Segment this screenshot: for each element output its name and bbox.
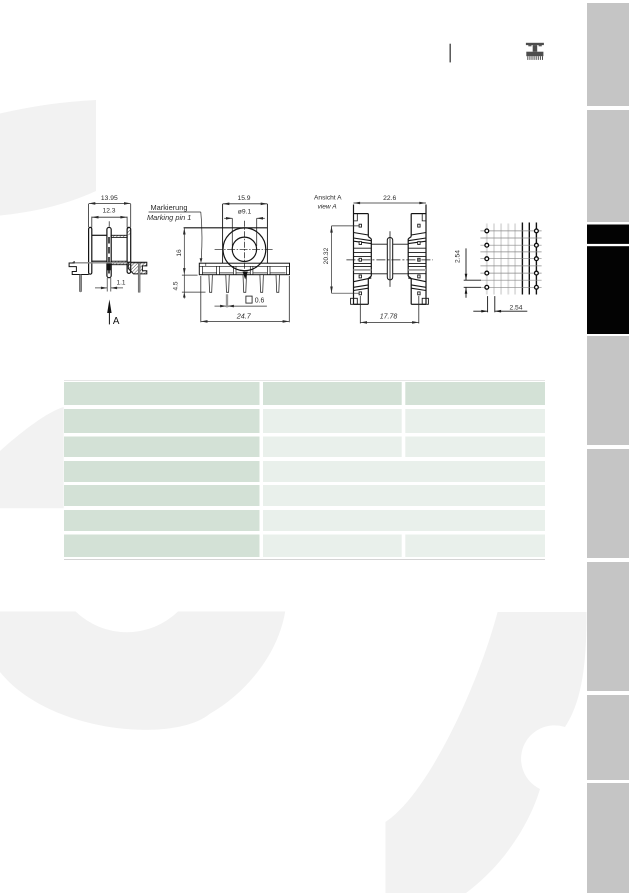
svg-text:20.32: 20.32 xyxy=(323,247,330,264)
svg-text:12.3: 12.3 xyxy=(102,208,115,215)
svg-text:16: 16 xyxy=(176,249,183,257)
svg-text:0.6: 0.6 xyxy=(255,297,265,304)
svg-text:Markierung: Markierung xyxy=(151,203,188,212)
svg-text:22.6: 22.6 xyxy=(383,195,396,202)
svg-text:Marking pin 1: Marking pin 1 xyxy=(147,213,191,222)
svg-text:ø9.1: ø9.1 xyxy=(238,209,252,216)
svg-text:view A: view A xyxy=(318,204,338,211)
svg-text:Ansicht A: Ansicht A xyxy=(314,194,342,201)
svg-text:A: A xyxy=(113,316,120,327)
svg-text:24.7: 24.7 xyxy=(236,312,252,321)
svg-text:2.54: 2.54 xyxy=(509,304,522,311)
svg-text:1.1: 1.1 xyxy=(116,279,125,286)
svg-text:13.95: 13.95 xyxy=(101,195,118,202)
svg-text:17.78: 17.78 xyxy=(380,313,398,320)
svg-text:15.9: 15.9 xyxy=(237,195,250,202)
svg-text:4.5: 4.5 xyxy=(173,281,180,290)
svg-text:2.54: 2.54 xyxy=(455,250,462,263)
